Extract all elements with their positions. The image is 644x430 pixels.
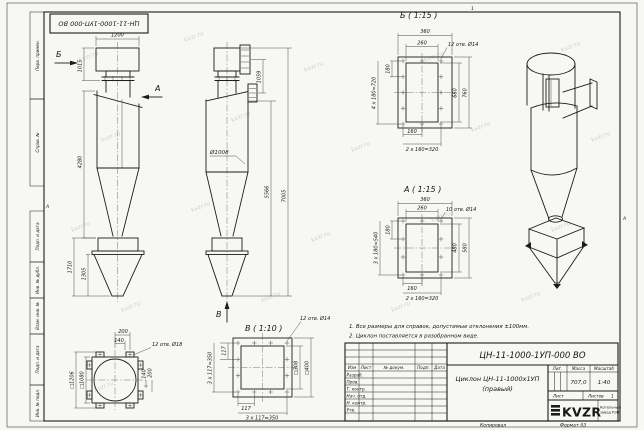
margin-label: Подп. и дата — [35, 222, 40, 250]
scale-label: Масштаб — [594, 366, 614, 371]
zone-letter-left: А — [45, 204, 49, 210]
dim-a-holes: 10 отв. Ø14 — [446, 206, 476, 213]
doc-number: ЦН-11-1000-1УП-000 ВО — [479, 351, 585, 361]
watermark-text: kvzr.ru — [310, 230, 332, 244]
dim-b-4x180: 4 х 180=720 — [372, 77, 378, 110]
dim-1710: 1710 — [68, 261, 74, 274]
dim-diameter-1008: Ø1008 — [209, 149, 229, 156]
company-name-1: Котельный — [600, 406, 622, 410]
dim-v-3x117b: 3 х 117=350 — [246, 416, 279, 422]
dim-a-3x180: 3 х 180=540 — [374, 232, 380, 265]
sheet-label: Лист — [552, 394, 564, 399]
footer: Копировал Формат А3 — [480, 423, 586, 429]
logo-text: KVZR — [562, 405, 601, 420]
dim-b-360: 360 — [420, 29, 430, 35]
watermark-text: kvzr.ru — [93, 380, 115, 394]
drawing-sheet: kvzr.ru kvzr.ru kvzr.ru kvzr.ru kvzr.ru … — [0, 0, 644, 430]
detail-b-view: Б ( 1:15 ) 360 260 12 отв. Ø14 180 4 х 1… — [372, 11, 479, 153]
dim-v-sq308: □308 — [294, 361, 300, 375]
dim-v-3x117l: 3 х 117=350 — [208, 352, 214, 385]
row-nkontr: Н. контр. — [347, 401, 367, 406]
col-doc: № докум. — [383, 365, 405, 370]
watermark-text: kvzr.ru — [520, 290, 542, 304]
notes: 1. Все размеры для справок, допустимые о… — [349, 324, 529, 340]
dim-v-sq400: □400 — [305, 361, 311, 375]
dim-a-480: 480 — [453, 243, 459, 253]
copied-label: Копировал — [480, 423, 506, 429]
flange-b-edge — [240, 45, 250, 74]
section-arrow-b: Б — [55, 50, 78, 65]
format-label: Формат А3 — [560, 423, 586, 429]
dim-a-2x160: 2 х 160=320 — [406, 296, 439, 302]
margin-label: Перв. примен. — [35, 40, 40, 71]
scale-value: 1:40 — [598, 380, 611, 386]
watermark-text: kvzr.ru — [470, 120, 492, 134]
dim-a-260: 260 — [417, 206, 427, 212]
watermark-text: kvzr.ru — [230, 110, 252, 124]
row-tkontr: Т. контр. — [347, 387, 366, 392]
detail-a-label: А ( 1:15 ) — [403, 185, 441, 194]
stamp-doc-number: ЦН-11-1000-1УП-000 ВО — [58, 20, 139, 28]
dim-f-holes: 12 отв. Ø18 — [152, 341, 182, 348]
dim-b-260: 260 — [417, 41, 427, 47]
watermark-text: kvzr.ru — [120, 300, 142, 314]
row-razrab: Разраб. — [347, 373, 363, 378]
margin-label: Инв. № дубл. — [35, 266, 40, 294]
dim-f-200: 200 — [118, 329, 128, 335]
dim-b-160: 160 — [407, 129, 417, 135]
dim-a-580: 580 — [463, 243, 469, 253]
mass-label: Масса — [572, 366, 586, 371]
lit-label: Лит. — [552, 366, 563, 371]
watermark-text: kvzr.ru — [303, 60, 325, 74]
watermark-layer: kvzr.ru kvzr.ru kvzr.ru kvzr.ru kvzr.ru … — [70, 30, 612, 394]
watermark-text: kvzr.ru — [350, 140, 372, 154]
dim-1305: 1305 — [82, 268, 88, 281]
dim-5566: 5566 — [265, 186, 271, 199]
note-2: 2. Циклон поставляется в разобранном вид… — [349, 334, 479, 340]
drawing-canvas: kvzr.ru kvzr.ru kvzr.ru kvzr.ru kvzr.ru … — [0, 0, 644, 430]
note-1: 1. Все размеры для справок, допустимые о… — [349, 324, 529, 330]
dim-7005: 7005 — [282, 190, 288, 203]
dim-f-200r: 200 — [148, 368, 154, 378]
watermark-text: kvzr.ru — [100, 130, 122, 144]
dim-b-2x160: 2 х 160=320 — [406, 147, 439, 153]
section-arrow-v: В — [216, 301, 229, 322]
col-izm: Изм — [348, 365, 357, 370]
front-view: 1200 1015 4280 1710 1305 Б А — [55, 33, 162, 303]
isometric-view — [525, 53, 597, 289]
detail-a-view: А ( 1:15 ) 360 260 10 отв. Ø14 180 3 х 1… — [374, 185, 477, 302]
arrow-label-b: Б — [56, 50, 62, 59]
dim-1015: 1015 — [78, 60, 84, 73]
part-name-2: (правый) — [482, 385, 513, 393]
zone-number: 1 — [471, 6, 474, 12]
row-nachotd: Нач. отд. — [347, 394, 367, 399]
section-arrow-a: А — [141, 84, 162, 99]
dim-1200: 1200 — [111, 33, 124, 39]
dim-b-holes: 12 отв. Ø14 — [448, 41, 478, 48]
watermark-text: kvzr.ru — [190, 200, 212, 214]
company-logo: KVZR — [551, 405, 601, 420]
dim-1059: 1059 — [257, 71, 263, 84]
margin-label: Справ. № — [35, 132, 40, 153]
dim-v-holes: 12 отв. Ø14 — [300, 315, 330, 322]
dim-4280: 4280 — [78, 156, 84, 169]
top-stamp: ЦН-11-1000-1УП-000 ВО — [50, 14, 148, 33]
dim-a-160: 160 — [407, 286, 417, 292]
arrow-label-v: В — [216, 310, 222, 319]
margin-label: Взам. инв. № — [35, 301, 40, 330]
company-name-2: завод РЭП — [600, 411, 620, 415]
detail-v-view: В ( 1:10 ) 12 отв. Ø14 117 3 х 117=350 1… — [208, 315, 331, 422]
dim-f-140: 140 — [114, 338, 124, 344]
dim-v-117l: 117 — [222, 345, 228, 355]
zone-letter-right: А — [622, 216, 626, 222]
mass-value: 707,0 — [570, 380, 586, 386]
dim-b-180: 180 — [386, 64, 392, 74]
detail-b-label: Б ( 1:15 ) — [400, 11, 437, 20]
watermark-text: kvzr.ru — [70, 220, 92, 234]
dim-b-660: 660 — [453, 88, 459, 98]
row-prov: Пров. — [347, 380, 359, 385]
watermark-text: kvzr.ru — [590, 130, 612, 144]
col-sign: Подп. — [417, 365, 430, 370]
title-block: Изм Лист № докум. Подп. Дата Разраб. Про… — [345, 343, 622, 421]
dim-f-1206: □1206 — [70, 371, 76, 388]
watermark-text: kvzr.ru — [560, 40, 582, 54]
flange-a-edge — [248, 84, 257, 102]
dim-a-360: 360 — [420, 197, 430, 203]
margin-label: Инв. № подл. — [35, 389, 40, 417]
watermark-text: kvzr.ru — [183, 30, 205, 44]
dim-b-760: 760 — [463, 88, 469, 98]
margin-attribute-boxes: Перв. примен. Справ. № Подп. и дата Инв.… — [30, 12, 44, 421]
dim-a-180: 180 — [386, 225, 392, 235]
margin-label: Подп. и дата — [35, 345, 40, 373]
sheets-value: 1 — [611, 394, 614, 399]
col-list: Лист — [360, 365, 372, 370]
part-name: Циклон ЦН-11-1000х1УП — [456, 375, 540, 383]
dim-f-1080: □1080 — [80, 371, 86, 388]
arrow-label-a: А — [154, 84, 160, 93]
sheets-label: Листов — [587, 394, 604, 399]
col-date: Дата — [433, 365, 445, 370]
flange-detail-view: 200 140 12 отв. Ø18 □1206 □1080 140 200 — [70, 329, 183, 410]
dim-v-117b: 117 — [241, 406, 251, 412]
side-view: Ø1008 1059 5566 7005 В — [206, 42, 292, 322]
row-utv: Утв. — [347, 408, 356, 413]
detail-v-label: В ( 1:10 ) — [245, 324, 282, 333]
